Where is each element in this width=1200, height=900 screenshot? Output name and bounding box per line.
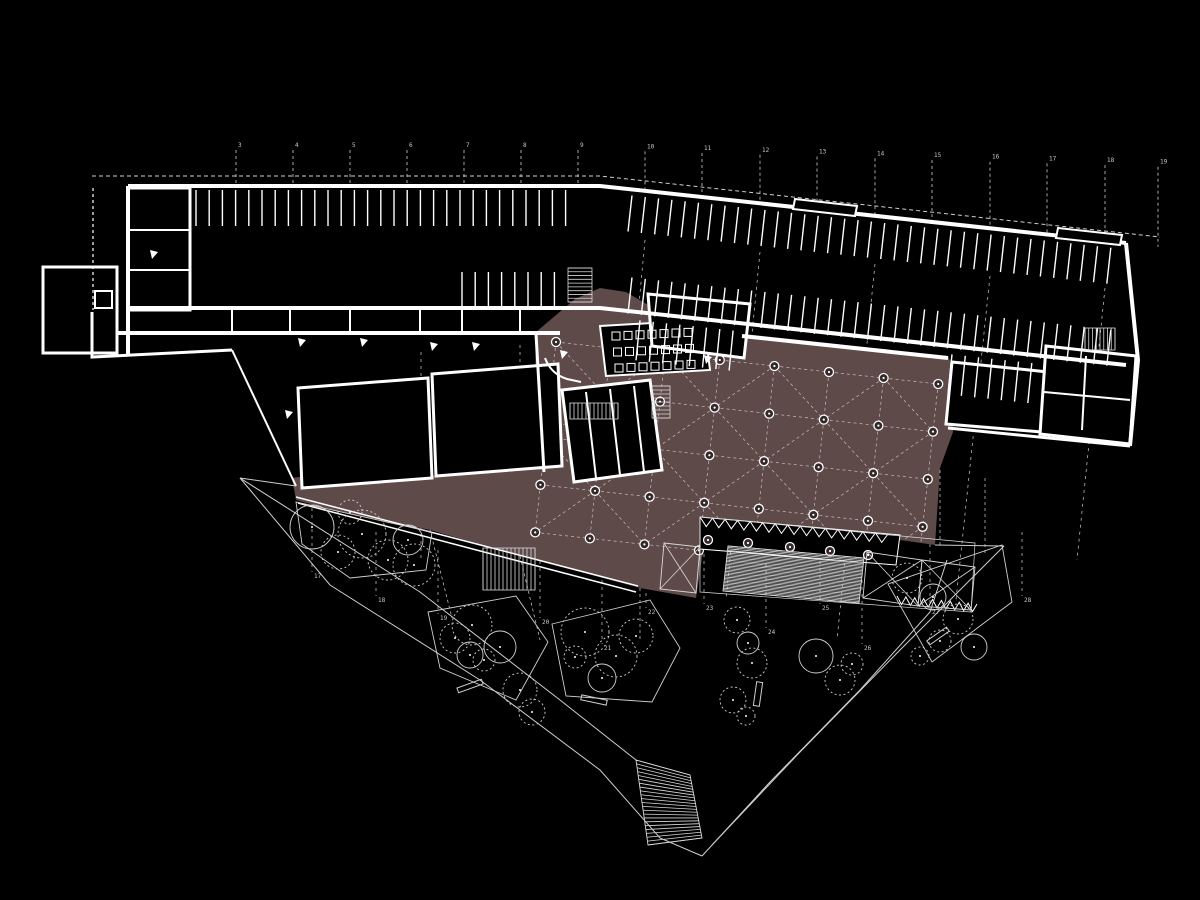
grid-label: 17: [314, 573, 322, 580]
room-core: [562, 380, 662, 482]
left-stack: [128, 188, 190, 310]
grid-label: 8: [523, 142, 527, 149]
grid-label: 23: [706, 605, 714, 612]
grid-label: 21: [604, 645, 612, 652]
annex-left: [43, 267, 117, 353]
grid-label: 11: [704, 145, 712, 152]
grid-label: 4: [295, 142, 299, 149]
room-ne: [648, 294, 750, 358]
grid-label: 6: [409, 142, 413, 149]
annex-window: [95, 291, 112, 308]
grid-label: 20: [542, 619, 550, 626]
floor-plan-canvas: 3456789101112131415161718191718192021222…: [0, 0, 1200, 900]
room-e1: [946, 362, 1048, 432]
grid-label: 13: [819, 149, 827, 156]
grid-label: 3: [238, 142, 242, 149]
grid-label: 5: [352, 142, 356, 149]
grid-label: 27: [932, 609, 940, 616]
grid-label: 9: [580, 142, 584, 149]
grid-label: 18: [378, 597, 386, 604]
floor-plan-svg: 3456789101112131415161718191718192021222…: [0, 0, 1200, 900]
grid-label: 25: [822, 605, 830, 612]
room-sw-a: [298, 378, 432, 488]
grid-label: 10: [647, 143, 655, 150]
grid-label: 26: [864, 645, 872, 652]
grid-label: 15: [934, 152, 942, 159]
grid-label: 17: [1049, 155, 1057, 162]
grid-label: 19: [1160, 159, 1168, 166]
grid-label: 28: [1024, 597, 1032, 604]
grid-label: 16: [992, 154, 1000, 161]
grid-label: 24: [768, 629, 776, 636]
grid-label: 19: [440, 615, 448, 622]
grid-label: 18: [1107, 157, 1115, 164]
grid-label: 14: [877, 150, 885, 157]
grid-label: 12: [762, 147, 770, 154]
grid-label: 7: [466, 142, 470, 149]
grid-label: 22: [648, 609, 656, 616]
